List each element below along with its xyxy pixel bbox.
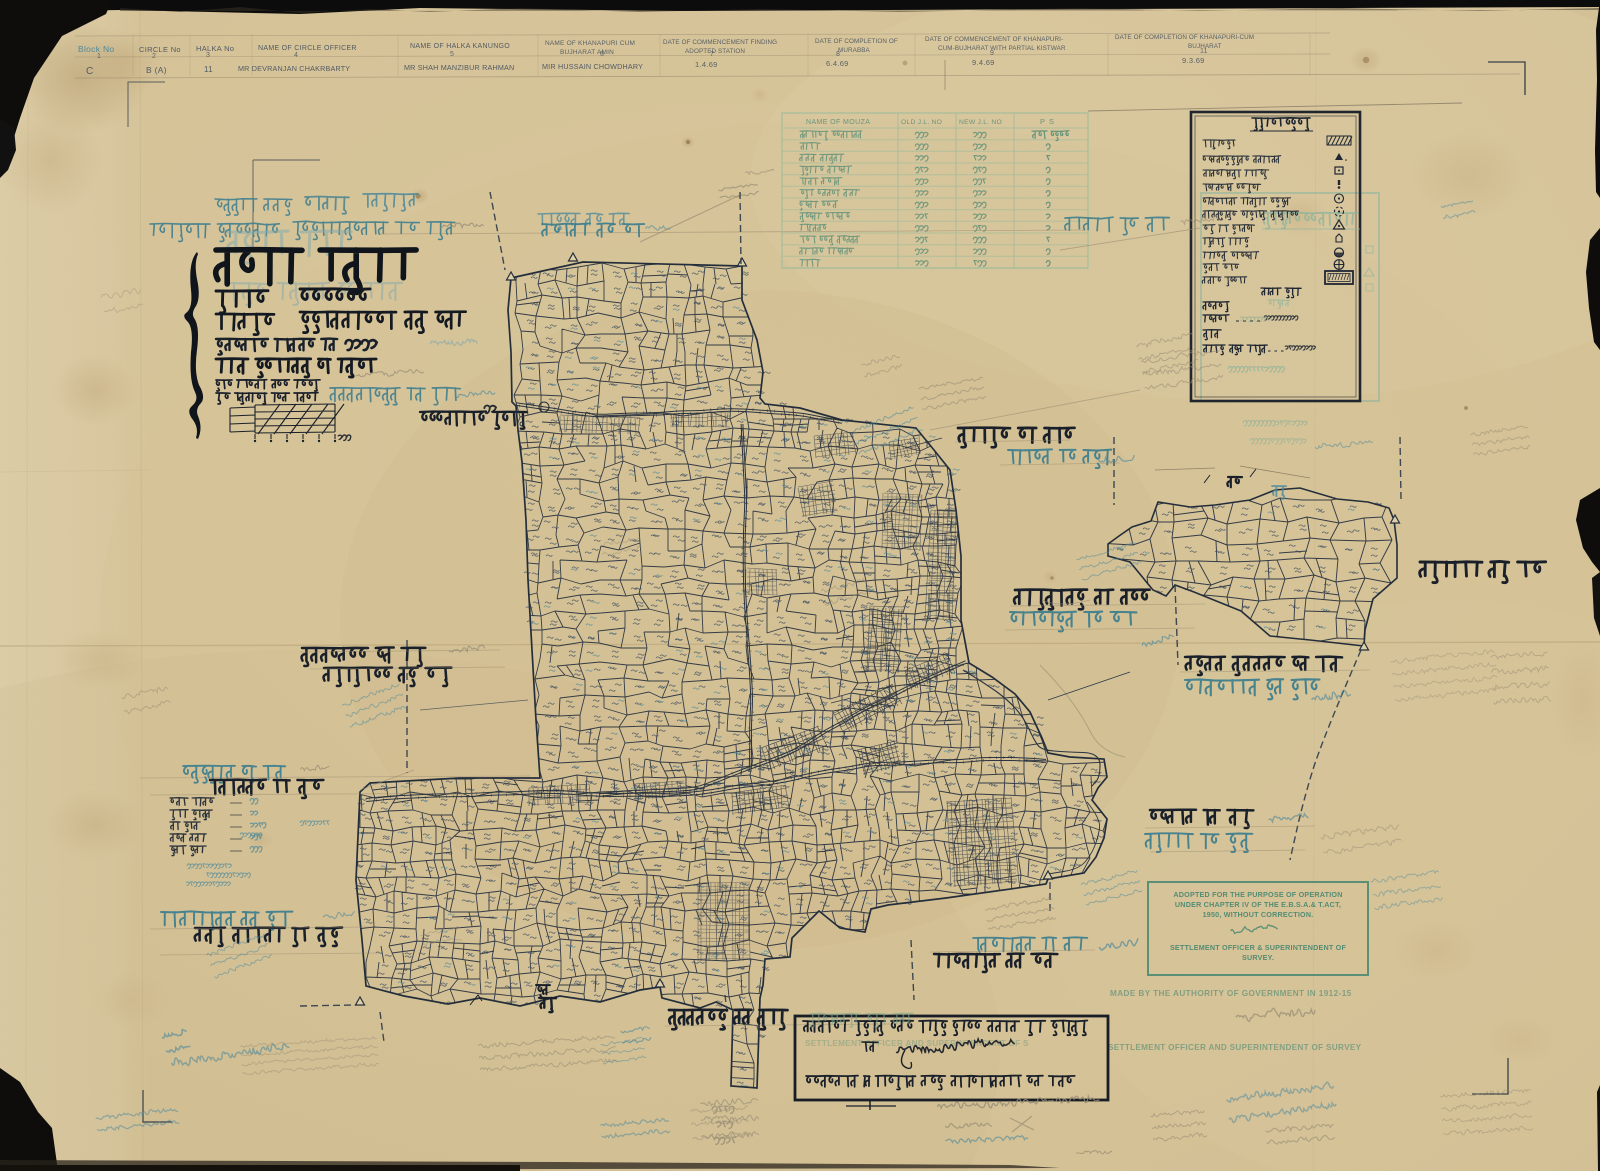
svg-text:DATE OF COMPLETION OF KHANAPUR: DATE OF COMPLETION OF KHANAPURI-CUM [1115,34,1254,41]
svg-text:SETTLEMENT OFFICER AND SUPERIN: SETTLEMENT OFFICER AND SUPERINTENDENT OF… [1108,1043,1362,1052]
svg-text:5: 5 [450,51,454,58]
svg-text:MR SHAH MANZIBUR RAHMAN: MR SHAH MANZIBUR RAHMAN [404,63,514,72]
svg-text:6: 6 [600,51,604,58]
svg-text:MURABBA: MURABBA [838,47,871,54]
svg-text:11: 11 [1200,48,1208,55]
svg-text:7: 7 [710,51,714,58]
svg-text:MADE BY THE AUTHORITY OF GOVER: MADE BY THE AUTHORITY OF GOVERNMENT IN 1… [1110,989,1352,998]
svg-text:NEW J.L. NO: NEW J.L. NO [959,119,1002,126]
svg-text:P S: P S [1040,117,1055,126]
svg-text:8: 8 [836,51,840,58]
svg-text:DATE OF COMMENCEMENT FINDING: DATE OF COMMENCEMENT FINDING [663,39,777,46]
svg-text:CUM-BUJHARAT WITH PARTIAL KIST: CUM-BUJHARAT WITH PARTIAL KISTWAR [938,45,1066,52]
svg-text:4: 4 [294,52,298,59]
svg-text:NAME OF KHANAPURI CUM: NAME OF KHANAPURI CUM [545,40,635,47]
svg-text:1.4.69: 1.4.69 [695,60,718,69]
svg-text:MIR HUSSAIN CHOWDHARY: MIR HUSSAIN CHOWDHARY [542,62,643,71]
svg-text:BUJHARAT AMIN: BUJHARAT AMIN [560,49,614,56]
svg-text:ADOPTED STATION: ADOPTED STATION [685,48,745,55]
svg-text:UNDER CHAPTER IV OF THE E.B.S.: UNDER CHAPTER IV OF THE E.B.S.A.& T.ACT, [1175,900,1341,909]
svg-text:DATE OF COMPLETION OF: DATE OF COMPLETION OF [815,38,898,45]
svg-text:SURVEY.: SURVEY. [1242,953,1274,962]
svg-text:B (A): B (A) [146,65,167,75]
svg-text:CIRCLE No: CIRCLE No [139,45,181,54]
svg-text:2: 2 [152,53,156,60]
svg-text:9.4.69: 9.4.69 [972,58,995,67]
svg-text:C: C [86,66,94,77]
svg-text:1950, WITHOUT CORRECTION.: 1950, WITHOUT CORRECTION. [1203,910,1314,919]
svg-text:DATE OF COMMENCEMENT OF KHANAP: DATE OF COMMENCEMENT OF KHANAPURI- [925,36,1063,43]
svg-text:OLD J.L. NO: OLD J.L. NO [901,119,942,126]
svg-text:NAME OF HALKA KANUNGO: NAME OF HALKA KANUNGO [410,43,510,50]
svg-text:MR DEVRANJAN CHAKRBARTY: MR DEVRANJAN CHAKRBARTY [238,64,350,73]
svg-text:NAME OF CIRCLE OFFICER: NAME OF CIRCLE OFFICER [258,45,357,52]
svg-text:HALKA No: HALKA No [196,44,234,53]
svg-text:SETTLEMENT OFFICER & SUPERINTE: SETTLEMENT OFFICER & SUPERINTENDENT OF [1170,943,1347,952]
svg-text:11: 11 [204,65,213,74]
svg-text:3: 3 [206,52,210,59]
svg-text:1: 1 [97,53,101,60]
svg-text:ADOPTED FOR THE PURPOSE OF OPE: ADOPTED FOR THE PURPOSE OF OPERATION [1173,890,1342,899]
svg-text:9.3.69: 9.3.69 [1182,56,1205,65]
svg-text:6.4.69: 6.4.69 [826,59,849,68]
svg-text:NAME OF MOUZA: NAME OF MOUZA [806,119,870,126]
svg-text:9: 9 [990,50,994,57]
